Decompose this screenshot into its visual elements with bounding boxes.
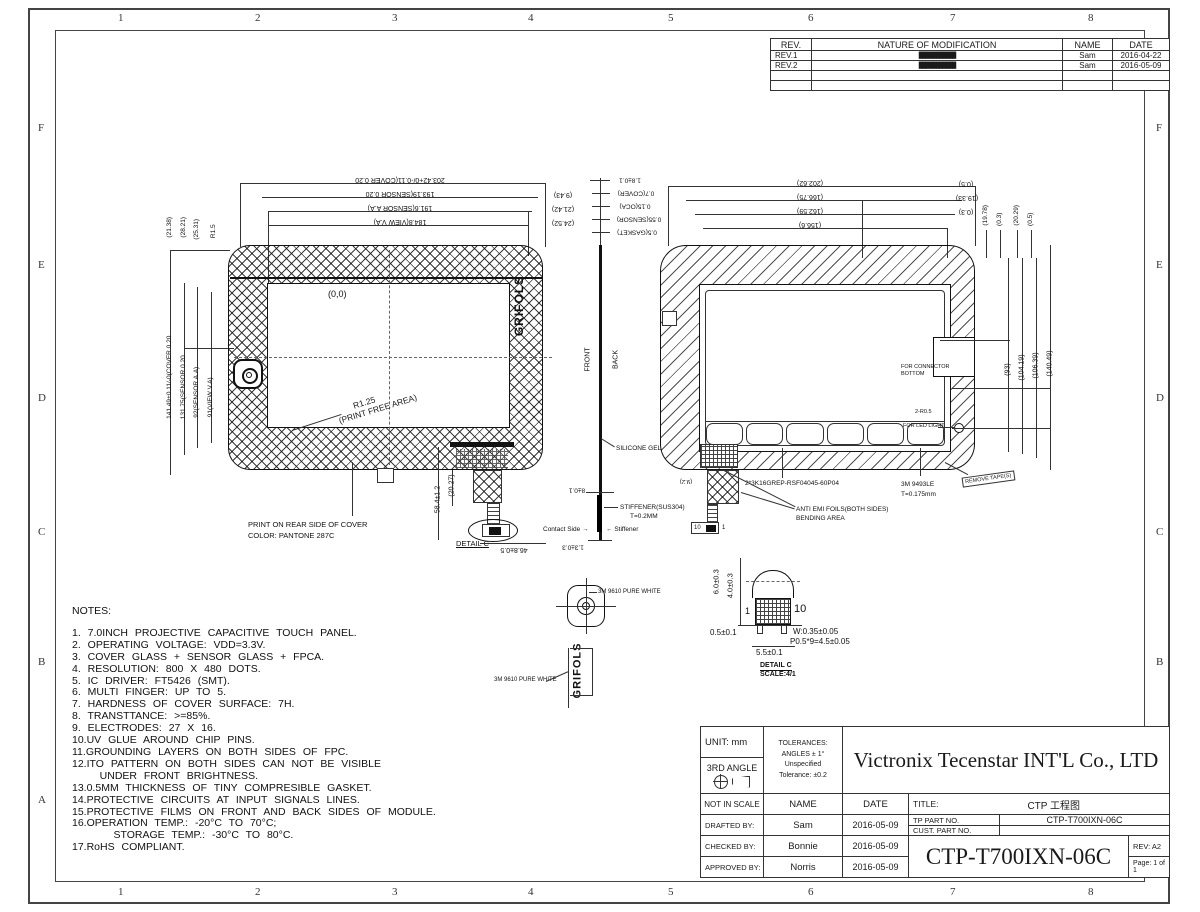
dim-line [438,447,439,540]
note-line: 12.ITO PATTERN ON BOTH SIDES CAN NOT BE … [72,759,452,771]
dim-label: (162.59) [775,207,845,214]
ext-line [170,250,230,251]
dim-label: 91(VIEW V.A) [208,352,215,442]
stack-dim-label: 0.7(COVER) [610,189,662,196]
dim-label: (106.39) [1033,341,1040,391]
dim-label: R1.5 [211,213,218,249]
stiffener-note-line1: STIFFENER(SUS304) [620,503,685,512]
dim-line [752,646,795,647]
dim-label: (0.3) [952,208,980,215]
back-side-label: BACK [613,340,620,380]
fpc-tail-narrow [707,504,718,523]
notes-block: NOTES: 1. 7.0INCH PROJECTIVE CAPACITIVE … [72,606,452,854]
dim-line [268,211,532,212]
stack-dim-label: 1.8±0.1 [610,176,650,183]
dim-label: (20.29) [1014,197,1021,233]
dim-line [240,183,545,184]
stack-dim-label: 0.55(SENSOR) [610,215,668,222]
checked-by-name: Bonnie [763,835,843,857]
connector-pin-block [489,527,501,535]
zone-letter: E [1156,259,1163,271]
tolerances-line1: TOLERANCES: [778,739,827,750]
part-number-big: CTP-T700IXN-06C [908,835,1129,878]
empty-cell [770,80,812,91]
drawing-sheet: 1 2 3 4 5 6 7 8 1 2 3 4 5 6 7 8 F E D C … [0,0,1200,912]
glue-blob [746,423,783,445]
approved-by-date: 2016-05-09 [842,856,909,878]
dim-line [668,186,975,187]
stack-dim-label: 0.5(GASKET) [610,228,664,235]
centerline-v [389,250,390,465]
connector-note-line1: FOR CONNECTOR [901,364,949,371]
zone-letter: E [38,259,45,271]
stiffener-label: ← Stiffener [606,527,638,534]
dim-label: 0.5±0.1 [710,629,737,637]
dim-label: (21.42) [548,205,578,212]
checked-by-date: 2016-05-09 [842,835,909,857]
projection-symbols [714,775,750,789]
zone-number: 4 [528,886,534,898]
stack-dim-label: 0.15(OCA) [610,202,660,209]
fpc-stiffener [473,470,502,503]
glue-line [705,421,945,422]
dim-line [740,558,741,626]
dim-label: 1.3±0.3 [556,543,590,550]
emi-note: ANTI EMI FOILS(BOTH SIDES) BENDING AREA [796,505,888,523]
stiffener-note: STIFFENER(SUS304) T=0.2MM [620,503,685,521]
origin-label: (0,0) [328,290,347,299]
zone-number: 7 [950,12,956,24]
dim-label: 184.8(VIEW V.A) [336,218,464,225]
pin-1-label: 1 [745,607,750,616]
sensor-edge-line [230,277,543,279]
leader-line [589,592,597,593]
drafted-by-label: DRAFTED BY: [700,814,764,836]
zone-number: 6 [808,12,814,24]
dim-label: (25.31) [194,211,201,247]
dim-label: (21.38) [167,209,174,245]
stiffener-bar [597,495,602,532]
ext-line [184,348,234,349]
stack-tick [586,492,614,493]
empty-cell [1062,80,1113,91]
glue-blob [827,423,864,445]
stack-tick [592,232,610,233]
connector-pin-area [755,598,791,625]
pin-stub [757,625,763,634]
contact-side-text: Contact Side [543,526,580,533]
dim-line [695,214,955,215]
ext-line [240,183,241,247]
dim-label: 141.49+0.11/-0(COVER 0.20 [167,317,174,437]
detail-c-scale: SCALE:4/1 [760,671,796,678]
dim-line [1031,230,1032,258]
fpc-connector-back: 10 [691,522,719,534]
tolerances-line4: Tolerance: ±0.2 [779,771,827,782]
page-cell: Page: 1 of 1 [1128,856,1170,878]
tape-note-line1: 3M 9493LE [901,480,936,490]
dim-label: (104.19) [1019,343,1026,393]
glue-blob [786,423,823,445]
stiffener-note-line2: T=0.2MM [620,512,685,521]
note-line: 2. OPERATING VOLTAGE: VDD=3.3V. [72,640,452,652]
dim-line [686,200,962,201]
zone-number: 1 [118,12,124,24]
zone-number: 2 [255,886,261,898]
note-line: 4. RESOLUTION: 800 X 480 DOTS. [72,664,452,676]
target-icon [714,775,728,789]
baseline [738,625,802,626]
note-line: UNDER FRONT BRIGHTNESS. [72,771,452,783]
zone-letter: B [38,656,45,668]
dim-line [986,230,987,258]
title-label: TITLE: [913,799,939,809]
company-name: Victronix Tecenstar INT'L Co., LTD [842,726,1170,794]
note-line: 14.PROTECTIVE CIRCUITS AT INPUT SIGNALS … [72,795,452,807]
dim-label: 6.0±0.3 [712,560,720,604]
pin-block [706,525,716,532]
unit-cell: UNIT: mm [700,726,764,758]
camera-window-back [662,311,677,326]
connector-note: FOR CONNECTOR BOTTOM [901,364,949,378]
contact-side-label: Contact Side → [543,527,589,534]
dim-label: 191.6(SENSOR A.A) [333,204,467,211]
camera-tape-note: 3M 9610 PURE WHITE [598,589,661,595]
pin-10-label: 10 [694,525,701,531]
empty-cell [811,80,1063,91]
print-note: PRINT ON REAR SIDE OF COVER COLOR: PANTO… [248,519,367,542]
dim-line [268,225,528,226]
third-angle-label: 3RD ANGLE [707,763,758,773]
dim-label: (140.49) [1047,339,1054,389]
dim-line [452,470,453,506]
print-note-line2: COLOR: PANTONE 287C [248,530,367,541]
approved-by-label: APPROVED BY: [700,856,764,878]
pin-1-label: 1 [722,525,725,531]
leader-line [604,507,618,508]
ext-line [668,186,669,246]
zone-number: 1 [118,886,124,898]
bonding-bar [450,442,514,447]
stack-tick [592,219,610,220]
dim-label: (166.75) [775,193,845,200]
zone-number: 7 [950,886,956,898]
zone-number: 3 [392,886,398,898]
zone-number: 2 [255,12,261,24]
dim-label: 131.75(SENSOR 0.20 [181,332,188,442]
leader-line [920,448,921,476]
zone-number: 6 [808,886,814,898]
logo-text: GRIFOLS [513,275,525,337]
ext-line [570,695,593,696]
ext-line [545,183,546,247]
zone-number: 3 [392,12,398,24]
tolerances-line2: ANGLES ± 1° [782,750,825,761]
leader-line [352,462,353,516]
approved-by-name: Norris [763,856,843,878]
dim-label: 4.0±0.3 [726,564,734,608]
dim-label: 46.8±0.5 [492,546,536,553]
dim-line [1017,230,1018,258]
zone-letter: F [1156,122,1162,134]
notes-title: NOTES: [72,606,452,618]
date-header-cell: DATE [842,793,909,815]
dim-line [262,197,538,198]
dim-label: P0.5*9=4.5±0.05 [790,638,850,646]
dim-label: (28.21) [181,209,188,245]
cone-icon [732,776,750,788]
not-in-scale-cell: NOT IN SCALE [700,793,764,815]
dim-label: (19.78) [983,197,990,233]
dim-line [703,228,947,229]
tape-note: 3M 9493LE T=0.175mm [901,480,936,500]
fpc-bonding-mesh [700,444,738,468]
projection-cell: 3RD ANGLE [700,757,764,794]
arrow-right-icon: → [582,526,589,533]
note-line: 13.0.5MM THICKNESS OF TINY COMPRESIBLE G… [72,783,452,795]
dim-label: (202.62) [775,179,845,186]
dim-label: (24.52) [548,219,578,226]
zone-number: 8 [1088,12,1094,24]
dim-label: 92(SENSOR A.A) [194,342,201,442]
glue-blob [706,423,743,445]
empty-cell [1112,80,1170,91]
title-cell: TITLE: CTP 工程图 [908,793,1170,815]
fpc-part-no-label: 2*3K16GREP-RSF04045-60P04 [745,481,839,488]
dim-line [592,648,593,696]
dim-label: (9.2) [674,478,698,484]
ext-line [570,648,593,649]
zone-letter: D [38,392,46,404]
ext-line [940,340,1010,341]
logo-detail-text: GRIFOLS [573,641,584,701]
dim-label: 5.5±0.1 [756,649,783,657]
zone-letter: A [38,794,46,806]
silicone-gel-label: SILICONE GEL [616,446,661,453]
zone-letter: C [1156,526,1163,538]
dim-label: (19.33) [950,194,984,201]
rev-cell: REV: A2 [1128,835,1170,857]
title-value: CTP 工程图 [1027,797,1080,812]
zone-number: 8 [1088,886,1094,898]
bottom-tab [377,468,394,483]
fpc-connector [482,524,510,537]
dim-line [1000,230,1001,258]
zone-number: 5 [668,12,674,24]
dim-label: 193.19(SENSOR 0.20 [330,190,470,197]
drafted-by-date: 2016-05-09 [842,814,909,836]
dim-label: 203.42+0/-0.11(COVER 0.20 [320,176,480,183]
ext-line [952,428,1050,429]
print-note-line1: PRINT ON REAR SIDE OF COVER [248,519,367,530]
dim-line [480,543,546,544]
note-line: 3. COVER GLASS + SENSOR GLASS + FPCA. [72,652,452,664]
pin-10-label: 10 [794,604,806,615]
zone-letter: D [1156,392,1164,404]
front-side-label: FRONT [585,340,592,380]
tolerances-cell: TOLERANCES: ANGLES ± 1° Unspecified Tole… [763,726,843,794]
glue-blob [867,423,904,445]
zone-number: 4 [528,12,534,24]
dim-label: W:0.35±0.05 [793,628,838,636]
stack-tick [592,206,610,207]
checked-by-label: CHECKED BY: [700,835,764,857]
dim-label: (156.6) [775,221,845,228]
zone-letter: F [38,122,44,134]
name-header-cell: NAME [763,793,843,815]
center-tick [586,578,587,634]
logo-baseline [568,648,569,708]
pin-stub [781,625,787,634]
camera-hole-dot [246,372,252,378]
zone-letter: B [1156,656,1163,668]
dim-label: (93) [1005,350,1012,390]
drafted-by-name: Sam [763,814,843,836]
dim-label: (0.5) [952,180,980,187]
camera-hole [233,359,263,389]
tape-note-line2: T=0.175mm [901,490,936,500]
emi-note-line1: ANTI EMI FOILS(BOTH SIDES) [796,505,888,514]
leader-line [782,448,783,478]
dim-label: (9.43) [548,191,578,198]
zone-number: 5 [668,886,674,898]
stack-tick [592,193,610,194]
tolerances-line3: Unspecified [785,760,822,771]
connector-note-line2: BOTTOM [901,371,949,378]
emi-note-line2: BENDING AREA [796,514,888,523]
dome-centerline [746,581,800,582]
stiffener-text: Stiffener [614,526,638,533]
arrow-left-icon: ← [606,526,613,533]
centerline-h [234,357,552,358]
zone-letter: C [38,526,45,538]
note-line: 17.RoHS COMPLIANT. [72,842,452,854]
stack-tick [588,540,612,541]
corner-radius-note: 2-R0.5 [915,410,932,416]
bonding-mesh [456,449,508,468]
detail-c-title: DETAIL C [760,662,792,671]
stack-ext-line [600,178,601,245]
stack-tick [590,180,610,181]
